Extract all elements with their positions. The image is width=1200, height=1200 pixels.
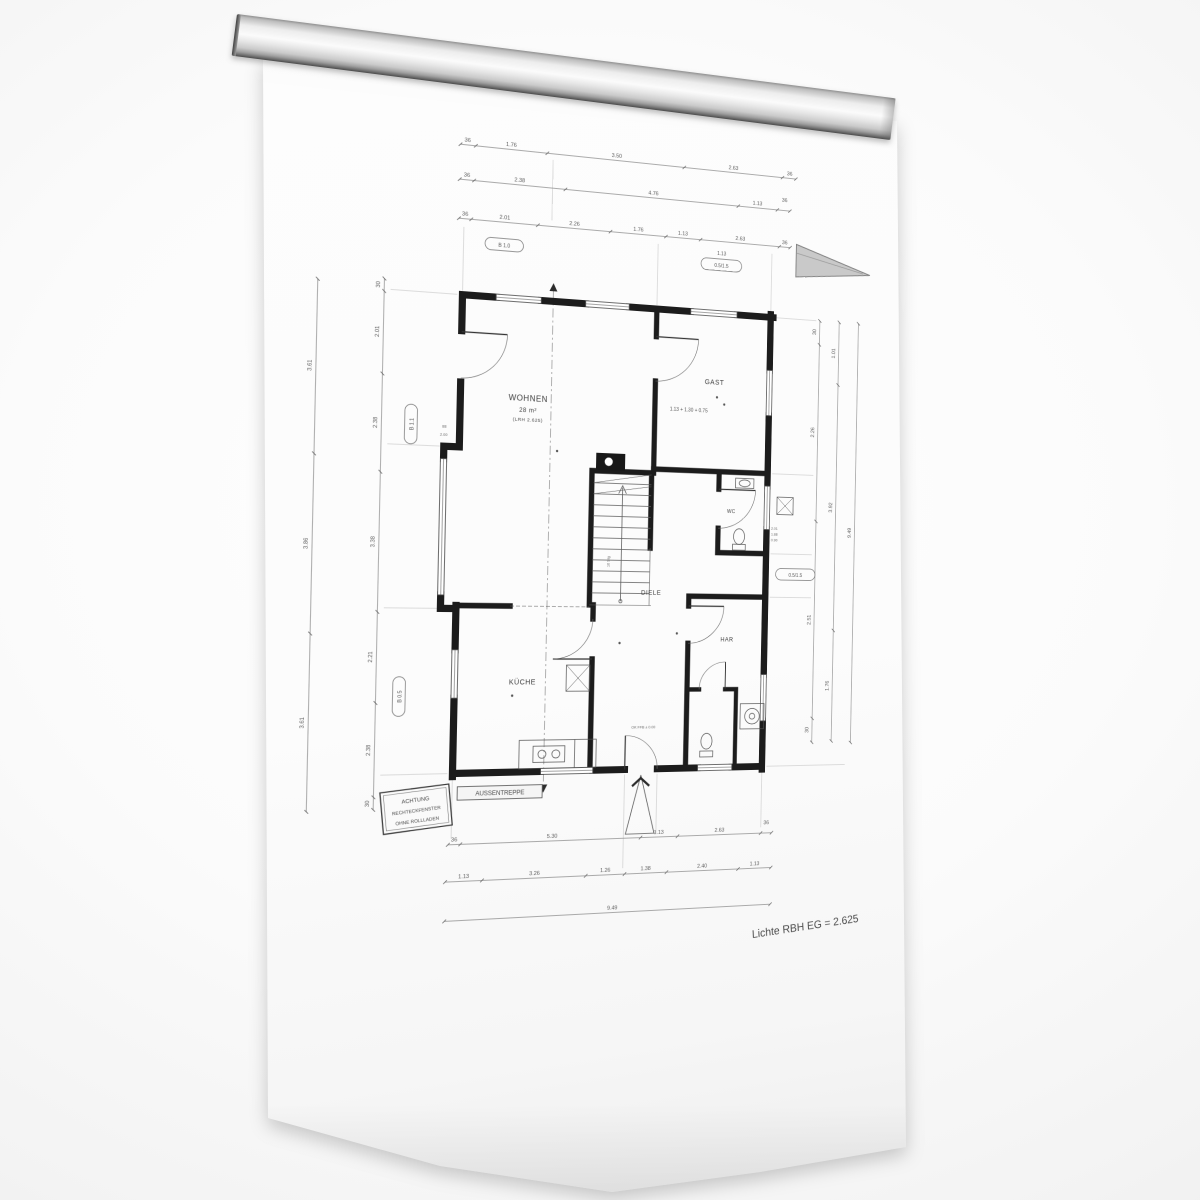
north-wedge-icon xyxy=(796,244,870,283)
dim-chain-right-1 xyxy=(812,321,820,742)
svg-text:WOHNEN: WOHNEN xyxy=(508,393,548,404)
svg-text:1.13: 1.13 xyxy=(717,251,726,258)
svg-text:1.76: 1.76 xyxy=(633,227,643,234)
svg-text:2.51: 2.51 xyxy=(807,615,812,625)
svg-text:30: 30 xyxy=(805,727,810,733)
chimney-block xyxy=(596,453,625,471)
svg-text:3.50: 3.50 xyxy=(612,153,622,160)
svg-text:9.49: 9.49 xyxy=(847,528,852,538)
svg-text:36: 36 xyxy=(462,211,468,218)
svg-text:2.01: 2.01 xyxy=(499,215,510,222)
svg-text:KÜCHE: KÜCHE xyxy=(509,678,536,686)
svg-text:2.38: 2.38 xyxy=(373,417,380,428)
wall-background: 36 1.76 3.50 2.63 36 36 2.38 4.76 1.13 3… xyxy=(0,0,1200,1200)
svg-text:5.30: 5.30 xyxy=(547,834,558,840)
svg-text:0.90: 0.90 xyxy=(771,538,778,542)
svg-text:2.63: 2.63 xyxy=(735,236,745,243)
interior-walls xyxy=(452,295,770,774)
svg-text:3.86: 3.86 xyxy=(303,538,310,549)
svg-text:GAST: GAST xyxy=(705,378,725,387)
bath-toilet xyxy=(701,733,712,749)
svg-text:3.61: 3.61 xyxy=(299,717,306,728)
svg-text:B 1.0: B 1.0 xyxy=(498,243,510,250)
svg-text:1.38: 1.38 xyxy=(640,866,650,872)
svg-text:36: 36 xyxy=(465,138,471,145)
svg-text:3.38: 3.38 xyxy=(370,536,377,547)
svg-text:B 0.5: B 0.5 xyxy=(397,690,403,702)
footer-note: Lichte RBH EG = 2.625 xyxy=(752,913,860,941)
svg-text:2.26: 2.26 xyxy=(569,221,580,228)
svg-text:2.21: 2.21 xyxy=(368,651,375,662)
room-markers xyxy=(511,385,726,697)
warning-note-box: ACHTUNG RECHTECKFENSTER OHNE ROLLLADEN xyxy=(380,784,452,834)
stairs xyxy=(510,470,654,608)
svg-text:0.5/1.5: 0.5/1.5 xyxy=(788,573,802,579)
svg-text:2.40: 2.40 xyxy=(697,864,707,870)
svg-text:36: 36 xyxy=(464,172,470,179)
svg-text:9.49: 9.49 xyxy=(607,905,617,911)
svg-text:HAR: HAR xyxy=(720,637,733,644)
svg-text:2.63: 2.63 xyxy=(729,165,739,172)
svg-text:2.00: 2.00 xyxy=(440,433,448,437)
svg-text:30: 30 xyxy=(376,281,382,288)
svg-text:1.26: 1.26 xyxy=(600,868,610,874)
svg-text:36: 36 xyxy=(782,198,788,204)
svg-text:2.26: 2.26 xyxy=(811,427,816,437)
svg-text:1.76: 1.76 xyxy=(825,681,830,691)
svg-text:36: 36 xyxy=(763,820,769,826)
svg-text:16 Stg: 16 Stg xyxy=(607,556,611,567)
svg-text:1.13: 1.13 xyxy=(458,874,469,881)
section-line xyxy=(539,283,557,793)
svg-text:2.01: 2.01 xyxy=(375,326,381,338)
svg-text:DIELE: DIELE xyxy=(641,590,661,597)
svg-text:88: 88 xyxy=(442,424,446,428)
svg-text:1.13: 1.13 xyxy=(750,861,760,867)
svg-text:0.5/1.5: 0.5/1.5 xyxy=(714,263,728,270)
svg-text:AUSSENTREPPE: AUSSENTREPPE xyxy=(475,789,524,797)
dimension-values: 36 1.76 3.50 2.63 36 36 2.38 4.76 1.13 3… xyxy=(295,121,859,928)
floor-plan-drawing: 36 1.76 3.50 2.63 36 36 2.38 4.76 1.13 3… xyxy=(272,101,893,997)
fixtures xyxy=(519,470,794,769)
wc-toilet xyxy=(733,529,744,545)
svg-text:36: 36 xyxy=(787,171,793,177)
svg-text:1.13: 1.13 xyxy=(678,231,688,238)
outer-walls xyxy=(437,290,774,777)
dim-chain-right-2 xyxy=(831,322,839,741)
svg-text:WC: WC xyxy=(727,509,736,515)
floor-plan-svg: 36 1.76 3.50 2.63 36 36 2.38 4.76 1.13 3… xyxy=(272,101,893,997)
kitchen-counter xyxy=(519,739,597,769)
svg-text:36: 36 xyxy=(782,240,788,246)
svg-text:1.13: 1.13 xyxy=(753,201,763,208)
svg-text:30: 30 xyxy=(365,800,371,807)
svg-text:3.26: 3.26 xyxy=(529,871,540,877)
svg-text:2.01: 2.01 xyxy=(771,527,778,531)
svg-text:1.88: 1.88 xyxy=(771,533,778,537)
blueprint-paper: 36 1.76 3.50 2.63 36 36 2.38 4.76 1.13 3… xyxy=(0,0,1200,1200)
svg-text:1.01: 1.01 xyxy=(832,348,837,359)
room-labels: WOHNEN 28 m² (LRH 2.625) GAST DIELE KÜCH… xyxy=(502,367,781,732)
svg-text:36: 36 xyxy=(451,837,457,843)
svg-text:(LRH 2.625): (LRH 2.625) xyxy=(513,417,543,423)
aussentreppe-box: AUSSENTREPPE xyxy=(457,785,542,801)
svg-text:1.13: 1.13 xyxy=(654,830,664,836)
svg-text:1.76: 1.76 xyxy=(506,142,517,149)
svg-text:B 1.1: B 1.1 xyxy=(409,418,415,431)
dim-chain-top-2 xyxy=(460,179,790,211)
svg-text:1.13 + 1.30 + 0.75: 1.13 + 1.30 + 0.75 xyxy=(670,407,708,415)
svg-text:28 m²: 28 m² xyxy=(519,407,537,415)
svg-text:2.38: 2.38 xyxy=(514,177,525,184)
windows xyxy=(434,290,774,777)
svg-text:2.63: 2.63 xyxy=(714,828,724,834)
svg-text:3.92: 3.92 xyxy=(829,502,834,512)
dim-chain-bottom-1 xyxy=(448,833,772,845)
svg-text:OK FFB ± 0.00: OK FFB ± 0.00 xyxy=(631,725,655,729)
svg-text:4.76: 4.76 xyxy=(648,191,658,198)
svg-text:2.38: 2.38 xyxy=(366,745,373,756)
svg-text:3.61: 3.61 xyxy=(307,359,314,371)
svg-text:30: 30 xyxy=(813,329,818,335)
